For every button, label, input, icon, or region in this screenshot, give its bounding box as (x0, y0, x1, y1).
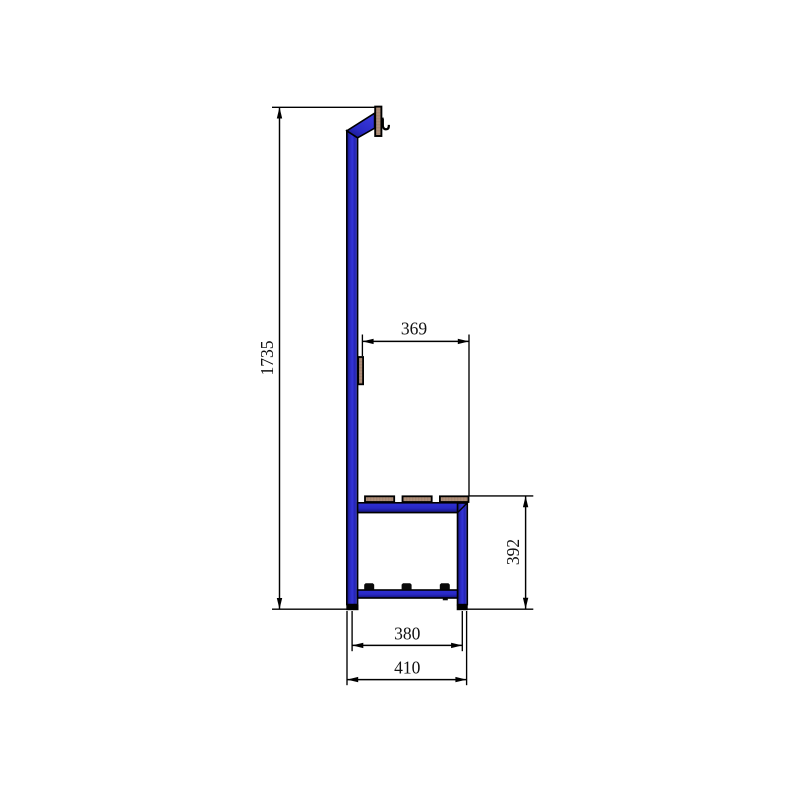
svg-text:380: 380 (394, 623, 421, 643)
svg-text:410: 410 (394, 658, 421, 678)
svg-text:392: 392 (503, 539, 523, 565)
svg-text:1735: 1735 (257, 340, 277, 375)
svg-text:369: 369 (401, 319, 428, 339)
